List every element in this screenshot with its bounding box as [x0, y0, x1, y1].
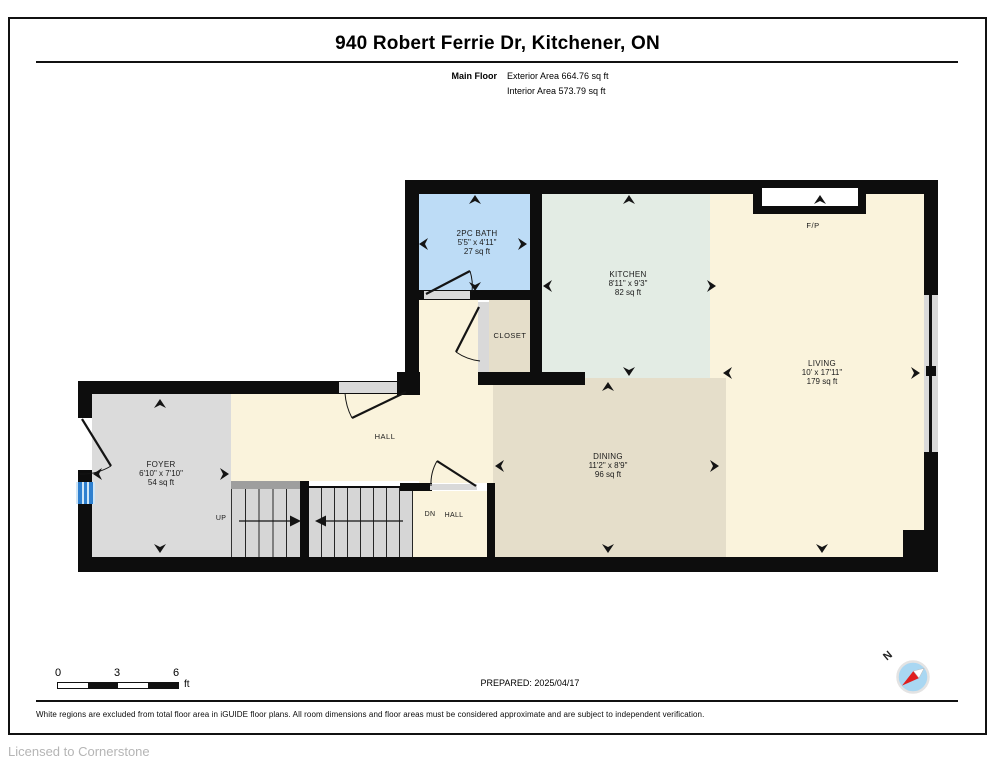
room-area: 27 sq ft: [457, 248, 498, 257]
wall: [78, 557, 938, 572]
scale-tick-0: 0: [55, 667, 61, 679]
door-opening: [339, 382, 397, 393]
wall: [78, 381, 92, 418]
room-hall-upper: [419, 300, 478, 385]
window-divider: [926, 366, 936, 376]
closet-label: CLOSET: [493, 332, 526, 340]
wall: [487, 483, 495, 572]
dining-label: DINING 11'2" x 8'9" 96 sq ft: [589, 453, 628, 480]
room-living-lower: [726, 378, 924, 557]
wall: [78, 504, 92, 572]
door-opening: [424, 291, 470, 299]
room-area: 179 sq ft: [802, 378, 842, 387]
room-hall-mid: [419, 385, 493, 483]
hall-label: HALL: [375, 433, 396, 441]
floorplan-page: 940 Robert Ferrie Dr, Kitchener, ON Main…: [0, 0, 995, 768]
stairs-down: [309, 488, 413, 557]
wall: [405, 180, 419, 395]
wall: [300, 481, 309, 572]
scale-tick-6: 6: [173, 667, 179, 679]
fireplace-niche-inner: [762, 188, 858, 206]
scale-bar: [57, 682, 179, 689]
wall: [530, 194, 542, 385]
room-area: 82 sq ft: [609, 289, 648, 298]
room-area: 96 sq ft: [589, 471, 628, 480]
door-opening: [430, 484, 477, 490]
dn-label: DN: [425, 511, 436, 519]
living-label: LIVING 10' x 17'11" 179 sq ft: [802, 360, 842, 387]
wall: [924, 180, 938, 295]
sidelight-window: [76, 482, 95, 504]
footer-divider: [36, 700, 958, 702]
floorplan: 2PC BATH 5'5" x 4'11" 27 sq ft KITCHEN 8…: [0, 0, 995, 768]
room-dn-hall: [413, 491, 487, 557]
dn-hall-label: HALL: [445, 512, 464, 520]
wall: [903, 530, 938, 572]
door-opening: [478, 302, 489, 372]
compass-icon: [895, 659, 931, 695]
room-area: 54 sq ft: [139, 479, 183, 488]
stairs-up-label: UP: [216, 515, 226, 523]
scale-tick-3: 3: [114, 667, 120, 679]
scale-unit: ft: [184, 679, 190, 690]
fireplace-label: F/P: [806, 222, 819, 230]
licensed-text: Licensed to Cornerstone: [8, 744, 150, 759]
wall: [309, 486, 413, 488]
disclaimer-text: White regions are excluded from total fl…: [36, 710, 704, 719]
bath-label: 2PC BATH 5'5" x 4'11" 27 sq ft: [457, 230, 498, 257]
stairs-up-landing: [231, 481, 300, 489]
foyer-label: FOYER 6'10" x 7'10" 54 sq ft: [139, 461, 183, 488]
kitchen-label: KITCHEN 8'11" x 9'3" 82 sq ft: [609, 271, 648, 298]
wall: [478, 372, 585, 385]
wall: [78, 470, 92, 482]
prepared-date: PREPARED: 2025/04/17: [430, 678, 630, 688]
stairs-up: [231, 489, 300, 557]
